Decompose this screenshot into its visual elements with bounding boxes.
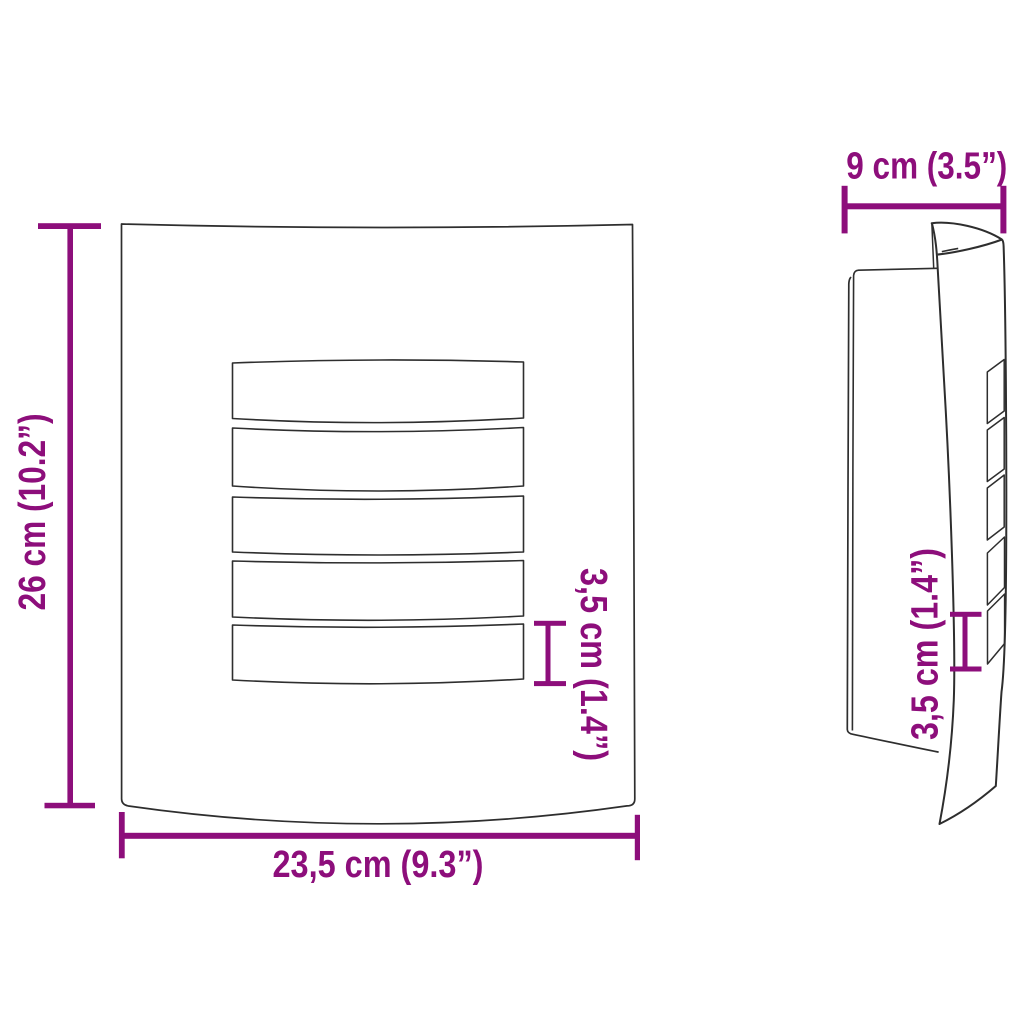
svg-text:23,5 cm (9.3”): 23,5 cm (9.3”) (273, 844, 484, 886)
svg-text:3,5 cm (1.4”): 3,5 cm (1.4”) (572, 568, 614, 761)
svg-text:3,5 cm (1.4”): 3,5 cm (1.4”) (905, 548, 947, 740)
svg-text:26 cm (10.2”): 26 cm (10.2”) (12, 414, 54, 611)
svg-text:9 cm (3.5”): 9 cm (3.5”) (846, 145, 1007, 187)
